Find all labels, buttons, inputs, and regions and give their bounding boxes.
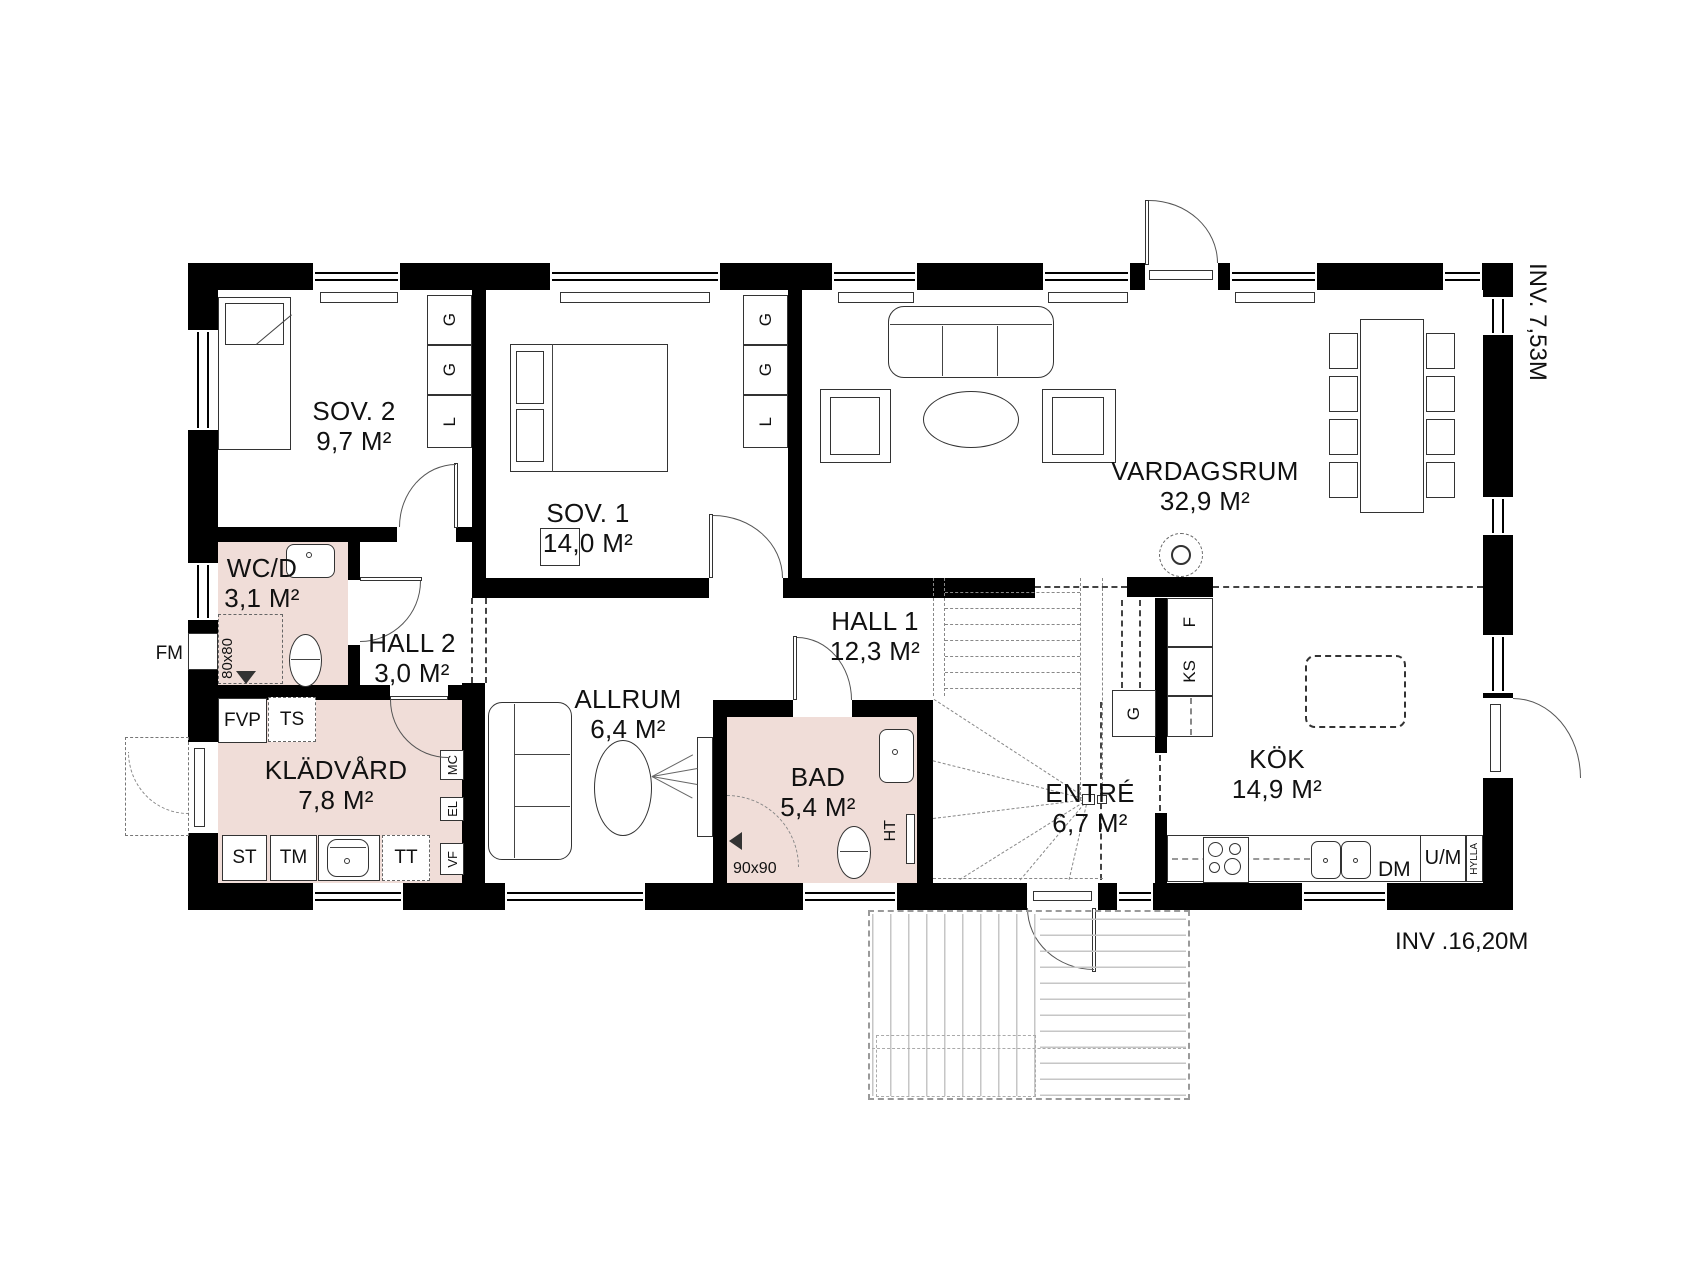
wall-sov2-bottom-b bbox=[456, 527, 472, 542]
kitchen-door-panel bbox=[1490, 704, 1501, 772]
sofa-back-line bbox=[514, 704, 515, 858]
window-sill bbox=[320, 292, 398, 303]
pillow bbox=[516, 351, 544, 404]
unit-st: ST bbox=[222, 835, 267, 881]
window bbox=[1043, 263, 1130, 290]
sofa-divider bbox=[942, 326, 943, 376]
window bbox=[550, 263, 720, 290]
stair-tread bbox=[945, 640, 1080, 641]
unit-fvp: FVP bbox=[218, 698, 267, 743]
wall-kladvard-allrum bbox=[462, 683, 485, 883]
open-boundary bbox=[1159, 755, 1161, 811]
wall-entre-kok-b bbox=[1155, 813, 1167, 883]
side-door-panel bbox=[194, 748, 205, 827]
burner bbox=[1208, 842, 1223, 857]
label-kladvard: KLÄDVÅRD7,8 M² bbox=[265, 755, 408, 815]
label-entre: ENTRÉ6,7 M² bbox=[1045, 778, 1135, 838]
toilet-seat-line bbox=[840, 851, 868, 852]
chimney-flue bbox=[1171, 545, 1191, 565]
window bbox=[1483, 497, 1513, 535]
unit-ts: TS bbox=[268, 697, 316, 742]
overhead-dashed bbox=[1121, 600, 1123, 688]
wall-wcd-right-b bbox=[348, 645, 360, 685]
window bbox=[1230, 263, 1317, 290]
unit-tm: TM bbox=[270, 835, 317, 881]
dining-table bbox=[1360, 319, 1424, 513]
label-kok: KÖK14,9 M² bbox=[1232, 744, 1322, 804]
unit-vf: VF bbox=[440, 843, 464, 875]
pillow bbox=[225, 303, 284, 345]
fm-label: FM bbox=[156, 643, 183, 665]
dm-label: DM bbox=[1378, 858, 1411, 882]
dining-chair bbox=[1426, 376, 1455, 412]
window bbox=[505, 883, 645, 910]
dining-chair bbox=[1329, 333, 1358, 369]
toilet bbox=[289, 634, 322, 687]
dining-chair bbox=[1329, 376, 1358, 412]
door-arc-sov1 bbox=[713, 515, 783, 578]
sofa-divider bbox=[997, 326, 998, 376]
window bbox=[1483, 635, 1513, 693]
stair-tread bbox=[945, 624, 1080, 625]
faucet-dot bbox=[892, 749, 898, 755]
drain-dot bbox=[1353, 858, 1358, 863]
faucet-dot bbox=[306, 552, 312, 558]
toilet bbox=[837, 826, 871, 879]
sink-line bbox=[330, 847, 366, 848]
unit-el: EL bbox=[440, 797, 464, 821]
wall-hall1-vardagsrum bbox=[783, 578, 1035, 598]
window bbox=[1302, 883, 1387, 910]
window bbox=[803, 883, 897, 910]
sofa-divider bbox=[514, 806, 570, 807]
wall-sov1-hall-a bbox=[472, 578, 709, 598]
closet-l: L bbox=[743, 395, 788, 448]
burner bbox=[1224, 858, 1241, 875]
floor-plan: G G L G G L 80x80 FVP TS ST TM TT MC EL … bbox=[0, 0, 1707, 1280]
closet-l: L bbox=[427, 395, 472, 448]
stair-rail bbox=[933, 578, 945, 696]
label-hall1: HALL 112,3 M² bbox=[830, 606, 920, 666]
label-allrum: ALLRUM6,4 M² bbox=[574, 684, 681, 744]
coffee-table bbox=[923, 391, 1019, 448]
window bbox=[832, 263, 917, 290]
label-hall2: HALL 23,0 M² bbox=[368, 628, 456, 688]
armchair-seat bbox=[830, 397, 880, 455]
cased-opening bbox=[471, 598, 473, 683]
burner bbox=[1229, 843, 1241, 855]
stair-rail bbox=[1080, 578, 1103, 800]
window bbox=[313, 263, 400, 290]
window bbox=[188, 563, 218, 620]
stair-tread bbox=[945, 688, 1080, 689]
window-sill bbox=[838, 292, 914, 303]
ht-label: HT bbox=[882, 820, 900, 841]
window bbox=[1117, 883, 1153, 910]
deck-boards-horizontal bbox=[1040, 914, 1186, 1096]
coffee-table bbox=[594, 740, 652, 836]
closet-g: G bbox=[743, 345, 788, 395]
toilet-seat-line bbox=[291, 659, 320, 660]
sofa bbox=[488, 702, 572, 860]
deck-step bbox=[876, 1035, 1036, 1097]
kitchen-island bbox=[1305, 655, 1406, 728]
unit-hylla: HYLLA bbox=[1466, 835, 1483, 882]
floor-drain-icon bbox=[729, 832, 742, 850]
exterior-wall-right bbox=[1483, 263, 1513, 910]
bed-line bbox=[552, 344, 553, 472]
wall-sov2-sov1 bbox=[472, 290, 486, 578]
window bbox=[313, 883, 403, 910]
sink bbox=[879, 729, 914, 783]
wall-bad-right bbox=[917, 700, 933, 883]
open-boundary bbox=[1213, 586, 1483, 588]
dining-chair bbox=[1426, 333, 1455, 369]
door-arc-terrace bbox=[1149, 200, 1218, 263]
label-vardagsrum: VARDAGSRUM32,9 M² bbox=[1111, 456, 1298, 516]
wall-entre-kok-a bbox=[1155, 598, 1167, 753]
label-bad: BAD5,4 M² bbox=[780, 762, 855, 822]
closet-g: G bbox=[743, 295, 788, 345]
closet-g: G bbox=[427, 295, 472, 345]
unit-f-freezer: F bbox=[1167, 598, 1213, 647]
bench-dash bbox=[1190, 698, 1192, 735]
dimension-bottom: INV .16,20M bbox=[1395, 928, 1528, 956]
towel-dryer bbox=[906, 814, 915, 864]
pillow bbox=[516, 409, 544, 462]
window bbox=[188, 330, 218, 430]
armchair-seat bbox=[1052, 397, 1104, 455]
drain-dot bbox=[1323, 858, 1328, 863]
overhead-dashed bbox=[1139, 600, 1141, 688]
unit-ks-fridge: KS bbox=[1167, 647, 1213, 696]
fm-cabinet bbox=[188, 633, 218, 670]
wall-chimney bbox=[1127, 577, 1213, 597]
closet-g-entre: G bbox=[1112, 690, 1156, 737]
dimension-right: INV. 7,53M bbox=[1523, 263, 1551, 381]
stair-tread bbox=[945, 608, 1080, 609]
dining-chair bbox=[1426, 462, 1455, 498]
wall-sov2-bottom-a bbox=[218, 527, 397, 542]
window bbox=[1443, 263, 1482, 290]
window-sill bbox=[1235, 292, 1315, 303]
tv-line bbox=[652, 754, 693, 776]
dining-chair bbox=[1329, 462, 1358, 498]
door-arc-kitchen bbox=[1513, 698, 1581, 778]
stair-edge bbox=[933, 878, 1103, 879]
faucet-dot bbox=[344, 858, 350, 864]
label-wcd: WC/D3,1 M² bbox=[224, 553, 299, 613]
closet-g: G bbox=[427, 345, 472, 395]
front-door-panel bbox=[1033, 891, 1092, 901]
stair-tread bbox=[945, 592, 1080, 593]
stair-tread bbox=[945, 672, 1080, 673]
dining-chair bbox=[1426, 419, 1455, 455]
wall-sov1-vardagsrum bbox=[788, 290, 802, 598]
wall-bad-left bbox=[713, 700, 727, 883]
sofa bbox=[888, 306, 1054, 378]
door-panel bbox=[1149, 270, 1213, 280]
shower-size-label: 80x80 bbox=[219, 638, 236, 679]
sofa-back-line bbox=[890, 324, 1052, 325]
sofa-divider bbox=[514, 754, 570, 755]
window bbox=[1483, 297, 1513, 335]
tv bbox=[697, 737, 713, 837]
unit-tt: TT bbox=[382, 835, 430, 881]
floor-drain-icon bbox=[236, 671, 256, 684]
window-sill bbox=[560, 292, 710, 303]
window-sill bbox=[1048, 292, 1128, 303]
label-sov2: SOV. 29,7 M² bbox=[312, 396, 395, 456]
burner bbox=[1209, 862, 1220, 873]
wall-bad-top-b bbox=[852, 700, 917, 717]
label-sov1: SOV. 114,0 M² bbox=[543, 498, 633, 558]
cased-opening bbox=[485, 598, 487, 683]
stair-tread bbox=[945, 656, 1080, 657]
unit-um: U/M bbox=[1420, 835, 1466, 882]
dining-chair bbox=[1329, 419, 1358, 455]
door-arc-sov2 bbox=[399, 464, 456, 527]
wall-wcd-right-a bbox=[348, 542, 360, 580]
